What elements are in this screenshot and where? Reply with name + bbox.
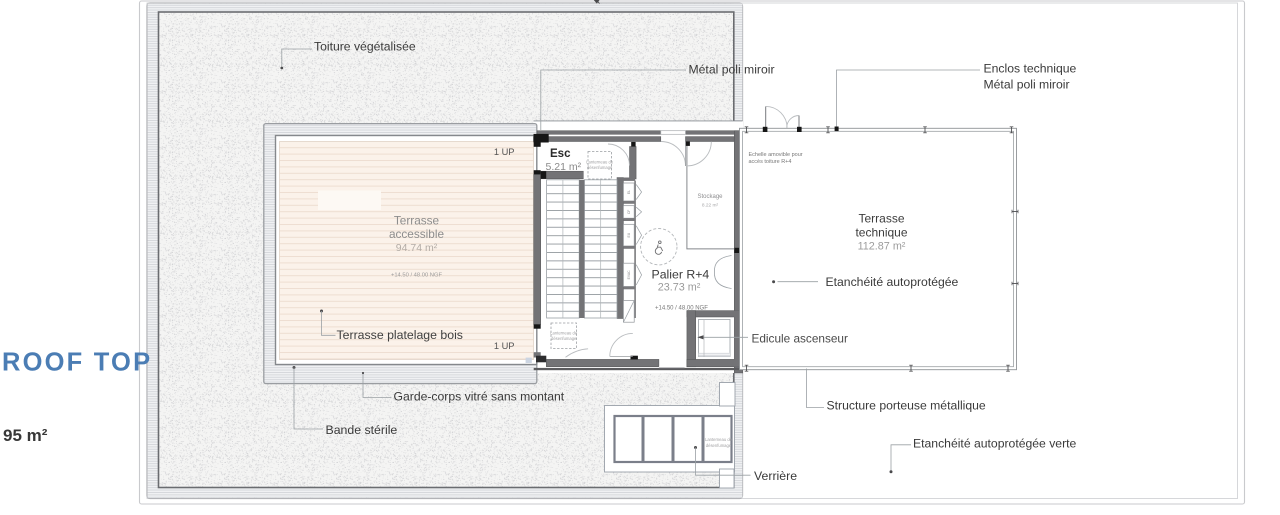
svg-text:1 UP: 1 UP: [494, 147, 515, 157]
svg-text:1 UP: 1 UP: [494, 341, 515, 351]
svg-text:Esc: Esc: [550, 148, 571, 160]
svg-text:accès toiture R+4: accès toiture R+4: [749, 159, 792, 165]
svg-text:EL: EL: [627, 190, 631, 194]
svg-text:Stockage: Stockage: [697, 194, 723, 200]
svg-text:Etanchéité autoprotégée verte: Etanchéité autoprotégée verte: [913, 437, 1077, 451]
svg-text:désenfumage: désenfumage: [551, 336, 577, 341]
svg-text:Garde-corps vitré sans montant: Garde-corps vitré sans montant: [394, 390, 565, 404]
svg-text:Structure porteuse métallique: Structure porteuse métallique: [827, 399, 986, 413]
svg-text:technique: technique: [855, 226, 907, 240]
svg-text:Bande stérile: Bande stérile: [326, 423, 398, 437]
svg-text:ROOF TOP: ROOF TOP: [2, 349, 152, 377]
svg-text:Etanchéité autoprotégée: Etanchéité autoprotégée: [826, 275, 959, 289]
svg-text:Métal poli miroir: Métal poli miroir: [984, 78, 1070, 92]
svg-text:8.22 m²: 8.22 m²: [702, 203, 719, 209]
svg-text:EVAC: EVAC: [627, 270, 631, 280]
svg-text:5.21 m²: 5.21 m²: [546, 161, 582, 173]
svg-text:CF: CF: [627, 210, 631, 215]
svg-text:EU: EU: [627, 232, 631, 237]
svg-text:Métal poli miroir: Métal poli miroir: [689, 62, 775, 76]
svg-text:+14.50 / 48.00 NGF: +14.50 / 48.00 NGF: [655, 306, 708, 312]
svg-text:Lanterneau de: Lanterneau de: [586, 160, 614, 165]
svg-text:Palier R+4: Palier R+4: [652, 267, 710, 281]
svg-text:112.87 m²: 112.87 m²: [858, 241, 906, 253]
svg-text:Terrasse: Terrasse: [394, 214, 440, 228]
svg-text:Edicule ascenseur: Edicule ascenseur: [752, 331, 848, 345]
svg-text:accessible: accessible: [389, 227, 445, 241]
svg-text:désenfumage: désenfumage: [587, 165, 613, 170]
svg-text:Lanterneau de: Lanterneau de: [550, 331, 578, 336]
svg-text:Toiture végétalisée: Toiture végétalisée: [314, 39, 416, 53]
svg-text:Terrasse platelage bois: Terrasse platelage bois: [337, 328, 463, 342]
svg-text:94.74 m²: 94.74 m²: [396, 242, 438, 254]
svg-text:Lanterneau de: Lanterneau de: [705, 437, 733, 442]
svg-text:Echelle amovible pour: Echelle amovible pour: [749, 152, 803, 158]
svg-text:+14.50 / 48.00 NGF: +14.50 / 48.00 NGF: [391, 273, 443, 279]
svg-text:95 m²: 95 m²: [3, 426, 48, 445]
svg-text:désenfumage: désenfumage: [706, 443, 732, 448]
svg-text:Verrière: Verrière: [754, 469, 797, 483]
svg-text:Enclos technique: Enclos technique: [984, 62, 1077, 76]
svg-text:23.73 m²: 23.73 m²: [658, 282, 701, 294]
svg-text:Terrasse: Terrasse: [858, 212, 904, 226]
